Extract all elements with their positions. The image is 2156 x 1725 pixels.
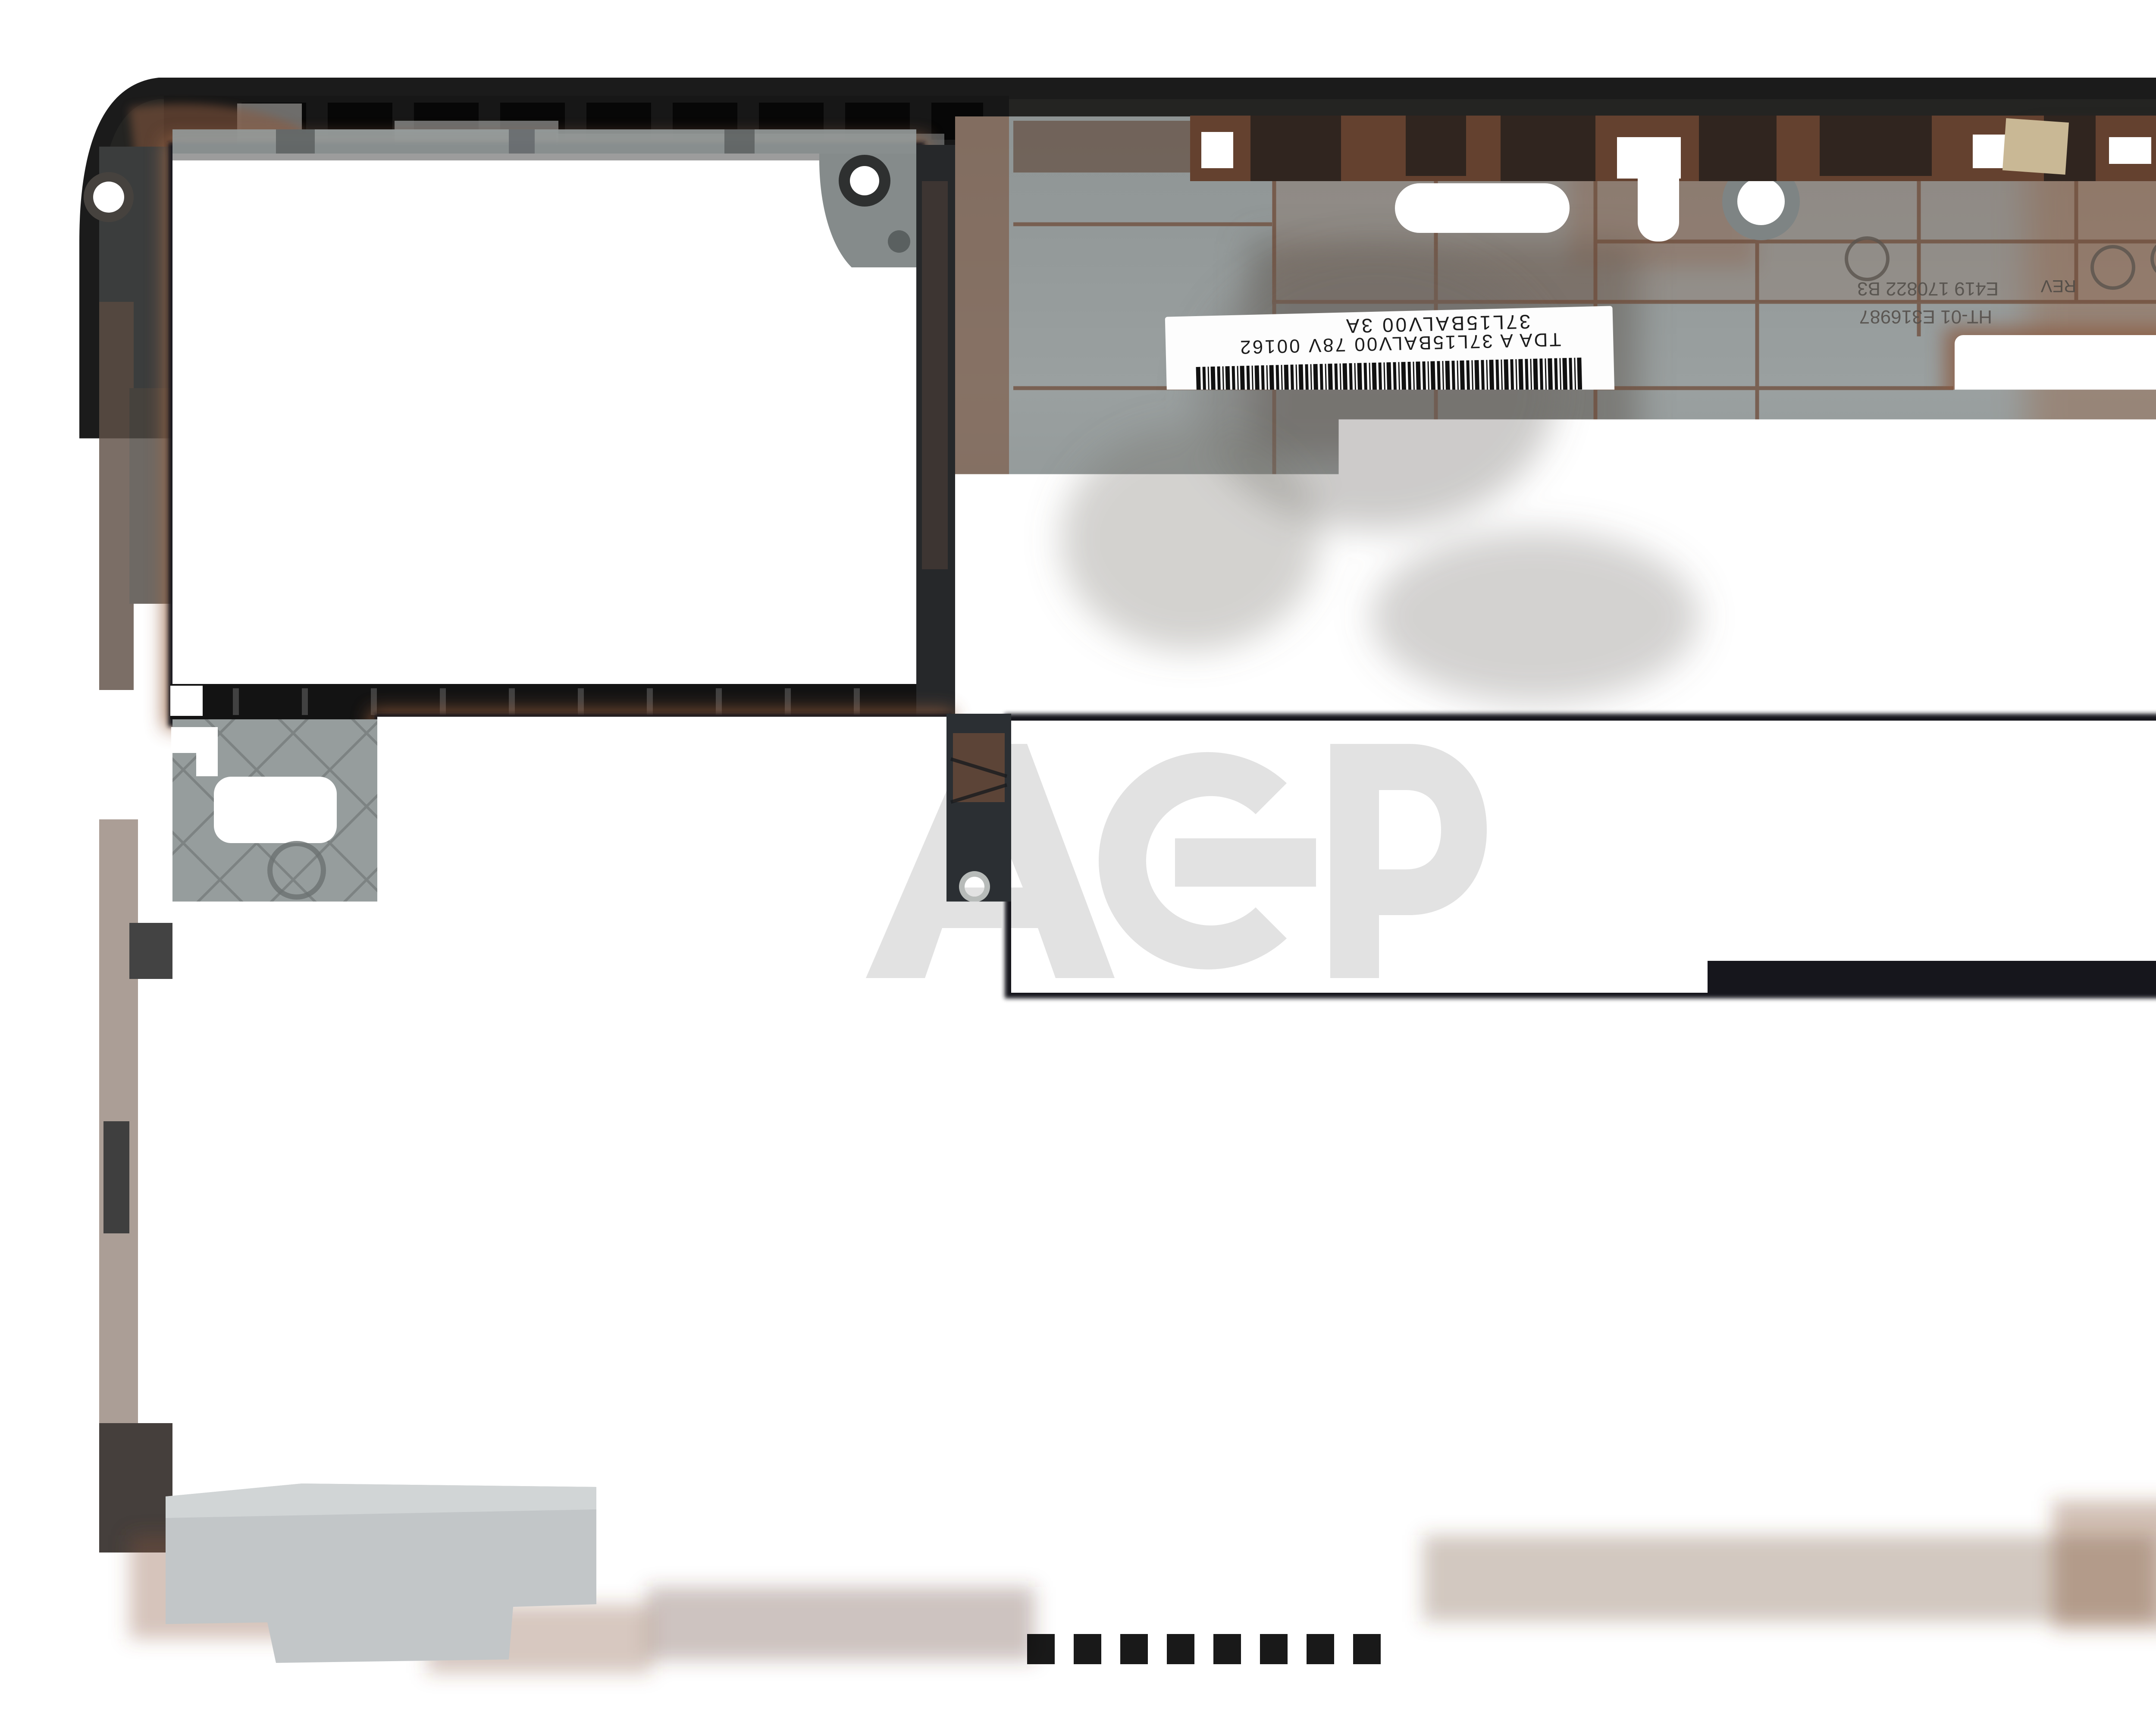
- svg-text:37L15BALV00 3A: 37L15BALV00 3A: [1344, 310, 1530, 338]
- svg-text:>PC+ABS-TD15 FR(40)<: >PC+ABS-TD15 FR(40)<: [1708, 447, 1893, 465]
- svg-text:REV: REV: [2040, 276, 2076, 295]
- svg-text:E419 170822 B3: E419 170822 B3: [1857, 278, 1999, 299]
- svg-text:HT-01 E316987: HT-01 E316987: [1859, 306, 1992, 327]
